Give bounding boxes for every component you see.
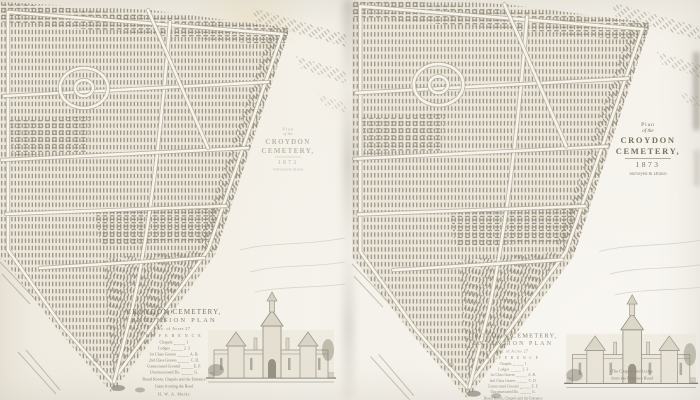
legend-items: Chapels1Lodges2. 31st Class GravesA. B.2… (461, 361, 565, 394)
title-main-1: CROYDON (257, 138, 319, 146)
legend-details: No. of Acres 27 R E F E R E N C E Chapel… (116, 326, 232, 398)
legend-item: Unconsecrated Do.G. (116, 370, 232, 376)
title-pretitle: Plan (257, 127, 319, 132)
legend-note-2: Gates fronting the Road (116, 384, 232, 390)
legend-subtitle: EXTENSION PLAN (116, 317, 232, 324)
legend-reference-title: R E F E R E N C E (461, 355, 565, 361)
scanned-cemetery-plan: Plan of the CROYDON CEMETERY, 1873 Surve… (0, 0, 700, 400)
title-rule (625, 158, 670, 159)
title-main-1: CROYDON (594, 135, 700, 145)
title-main-2: CEMETERY, (594, 146, 700, 156)
legend-subtitle: EXTENSION PLAN (461, 340, 565, 347)
legend-items: Chapels1Lodges2. 31st Class GravesA. B.2… (116, 340, 232, 376)
building-caption-line-2: from the Entrance Road (575, 375, 689, 382)
legend-acreage: No. of Acres 27 (116, 326, 232, 332)
legend-surveyor: H. W. A. Marks (116, 392, 232, 398)
legend-title: CROYDON CEMETERY, (116, 308, 232, 316)
legend-reference-title: R E F E R E N C E (116, 333, 232, 339)
legend-title: CROYDON CEMETERY, (461, 332, 565, 339)
legend-details: No. of Acres 27 R E F E R E N C E Chapel… (461, 349, 565, 400)
edge-smudge (693, 52, 700, 130)
title-block-right: Plan of the CROYDON CEMETERY, 1873 Surve… (594, 122, 700, 177)
title-midtitle: of the (594, 129, 700, 134)
legend-note-1: Board Room, Chapels and the Entrance (116, 377, 232, 383)
title-subtitle: Surveyed & Drawn (257, 168, 319, 172)
legend-block-left: CROYDON CEMETERY, EXTENSION PLAN No. of … (116, 308, 232, 400)
building-caption: The Chapels and Lodge from the Entrance … (575, 368, 689, 391)
title-rule (275, 157, 301, 158)
title-block-left: Plan of the CROYDON CEMETERY, 1873 Surve… (257, 127, 319, 172)
scan-seam (343, 0, 354, 400)
building-caption-line-1: The Chapels and Lodge (575, 368, 689, 375)
legend-block-right: CROYDON CEMETERY, EXTENSION PLAN No. of … (461, 332, 565, 400)
legend-acreage: No. of Acres 27 (461, 349, 565, 355)
title-subtitle: Surveyed & Drawn (594, 172, 700, 177)
title-year: 1873 (257, 158, 319, 165)
title-year: 1873 (594, 160, 700, 169)
legend-note-1: Board Room, Chapels and the Entrance (461, 396, 565, 400)
title-midtitle: of the (257, 133, 319, 137)
building-caption-text: The Chapels and Lodge from the Entrance … (575, 368, 689, 381)
title-main-2: CEMETERY, (257, 147, 319, 155)
title-pretitle: Plan (594, 122, 700, 128)
legend-item: Unconsecrated Do.G. (461, 389, 565, 395)
